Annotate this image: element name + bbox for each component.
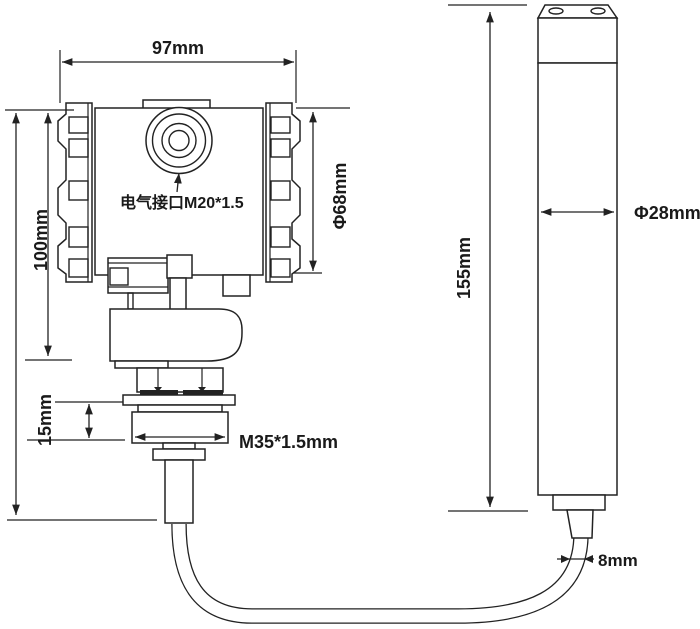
mounting-flange-plate	[123, 395, 235, 405]
dimension-housing-height: 100mm	[25, 113, 72, 360]
electrical-port-label: 电气接口M20*1.5	[120, 193, 244, 212]
transmitter-assembly	[58, 100, 300, 523]
thread-step-band	[138, 405, 222, 412]
adapter-body	[137, 368, 223, 392]
cable	[179, 524, 581, 616]
lobe-tab	[115, 361, 168, 368]
dimension-housing-diameter: Φ68mm	[294, 108, 350, 273]
probe-body	[538, 63, 617, 495]
dimension-label-phi28: Φ28mm	[634, 203, 700, 223]
dimension-label-15mm: 15mm	[35, 394, 55, 446]
bracket-support	[128, 293, 133, 309]
dimension-probe-length: 155mm	[448, 5, 528, 511]
dimension-thread-length: 15mm	[27, 394, 125, 446]
probe-cable-nipple	[567, 510, 593, 538]
dimension-label-m35: M35*1.5mm	[239, 432, 338, 452]
dimension-label-8mm: 8mm	[598, 551, 638, 570]
gland-stem	[165, 460, 193, 523]
probe-bottom-collar	[553, 495, 605, 510]
dimension-label-phi68: Φ68mm	[330, 163, 350, 230]
dimension-housing-width: 97mm	[60, 38, 296, 103]
bracket-stem	[170, 278, 186, 310]
connector-gland-circles	[146, 108, 212, 174]
dimension-drawing-canvas: 97mm 100mm Φ68mm 电气接口M20*1.5 15mm M35*1.…	[0, 0, 700, 629]
dimension-label-100mm: 100mm	[31, 209, 51, 271]
left-flange-cover	[58, 103, 92, 282]
probe-cap-front	[538, 18, 617, 63]
right-flange-cover	[266, 103, 300, 282]
cable-core	[179, 524, 581, 616]
m35-thread-body	[132, 412, 228, 443]
probe-assembly	[538, 5, 617, 538]
bracket-block	[167, 255, 192, 278]
process-housing-lobe	[110, 309, 242, 361]
cable-gland	[153, 443, 205, 523]
thread-adapter	[137, 368, 223, 395]
left-flange-silhouette	[58, 103, 92, 282]
gland-neck	[163, 443, 195, 449]
transmitter-dimension-drawing: 97mm 100mm Φ68mm 电气接口M20*1.5 15mm M35*1.…	[0, 0, 700, 629]
dimension-label-155mm: 155mm	[454, 237, 474, 299]
dimension-label-97mm: 97mm	[152, 38, 204, 58]
bracket-step	[223, 275, 250, 296]
gland-collar	[153, 449, 205, 460]
